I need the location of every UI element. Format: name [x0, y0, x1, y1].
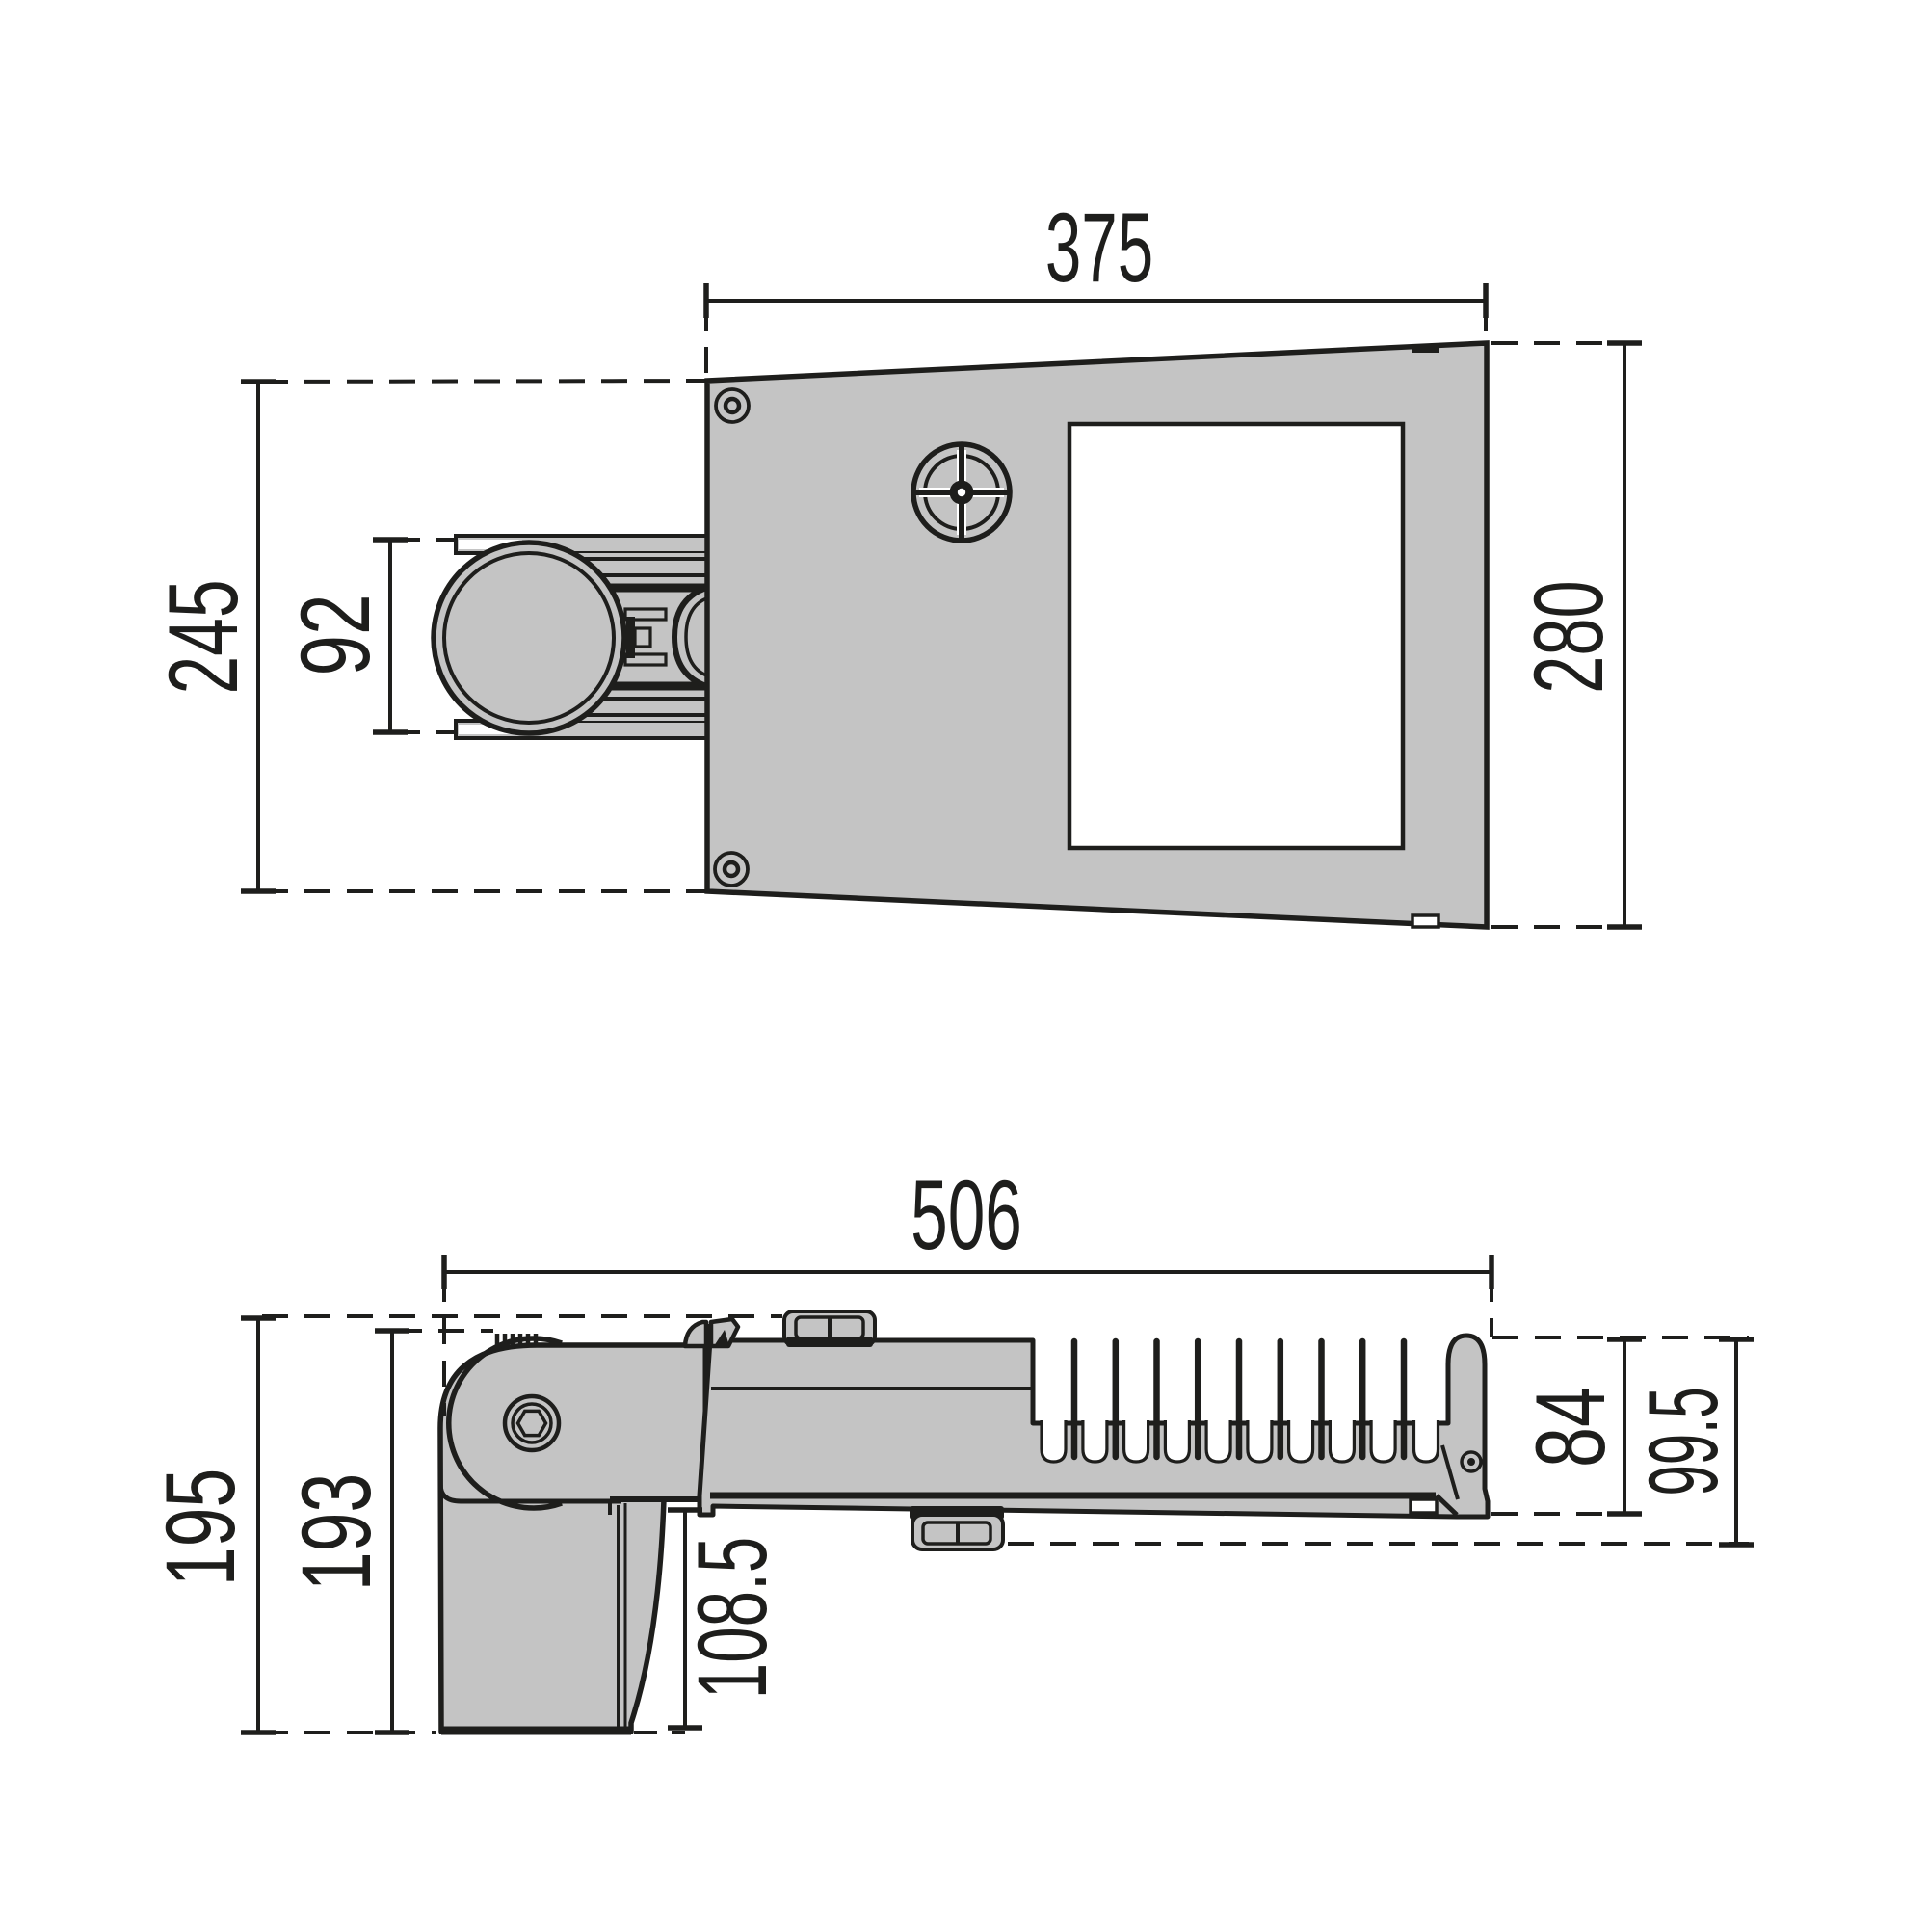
svg-text:375: 375	[1045, 194, 1153, 303]
svg-text:92: 92	[280, 594, 390, 675]
svg-text:280: 280	[1514, 580, 1623, 693]
svg-text:506: 506	[911, 1161, 1022, 1270]
svg-text:195: 195	[145, 1469, 255, 1587]
svg-text:108.5: 108.5	[678, 1537, 787, 1699]
svg-text:99.5: 99.5	[1628, 1387, 1738, 1495]
svg-text:84: 84	[1517, 1387, 1626, 1468]
svg-text:245: 245	[147, 579, 258, 694]
svg-text:193: 193	[281, 1473, 391, 1592]
